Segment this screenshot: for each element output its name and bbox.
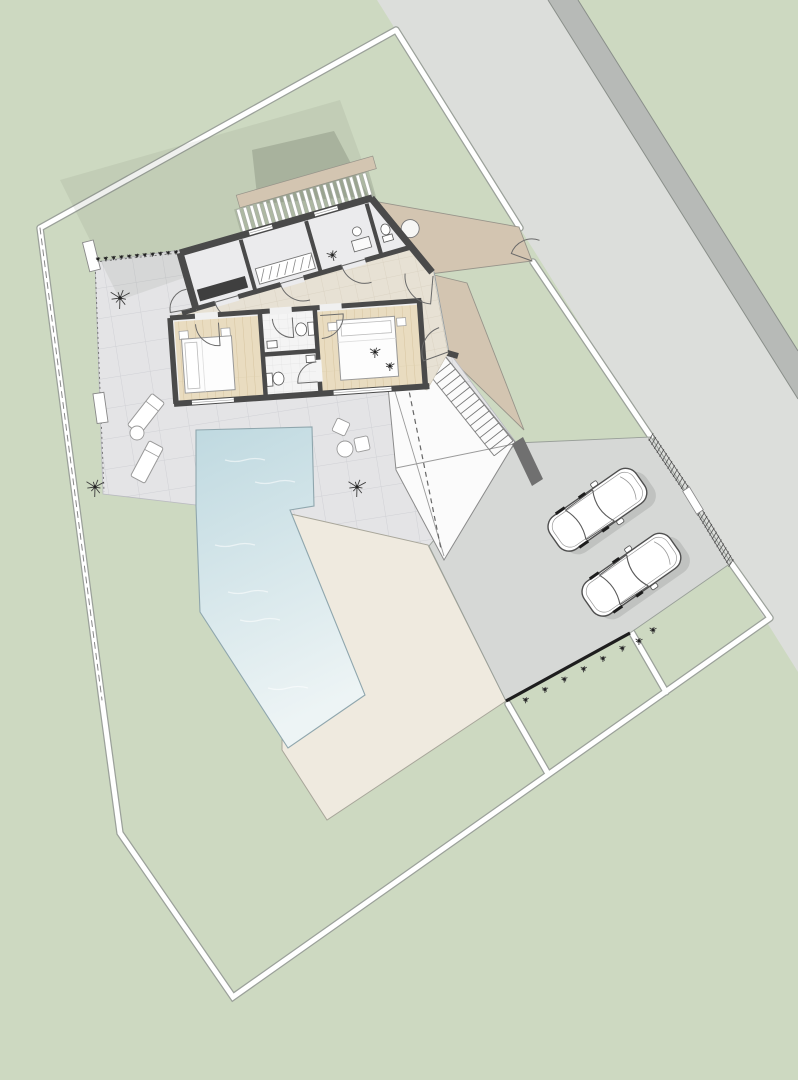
- nightstand: [397, 318, 407, 327]
- site-plan: [0, 0, 798, 1080]
- sprig-center: [93, 485, 96, 488]
- sprig-center: [128, 255, 130, 257]
- sprig-center: [97, 258, 99, 260]
- nightstand: [179, 331, 189, 340]
- sprig-center: [355, 485, 358, 488]
- sink: [267, 341, 277, 349]
- nightstand: [328, 322, 338, 331]
- sprig-center: [159, 252, 161, 254]
- sprig-center: [144, 254, 146, 256]
- sprig-center: [389, 365, 391, 367]
- sprig-center: [544, 688, 546, 690]
- sprig-center: [136, 254, 138, 256]
- sink: [306, 355, 315, 363]
- nightstand: [221, 328, 231, 337]
- sprig-center: [167, 252, 169, 254]
- sprig-center: [621, 647, 623, 649]
- sprig-center: [563, 678, 565, 680]
- sprig-center: [602, 657, 604, 659]
- sprig-center: [105, 257, 107, 259]
- site-plan-page: [0, 0, 798, 1080]
- sprig-center: [524, 699, 526, 701]
- toilet-cistern: [308, 322, 315, 335]
- sprig-center: [582, 668, 584, 670]
- sprig-center: [652, 629, 654, 631]
- house-south-wing: [168, 297, 430, 406]
- side-table: [130, 426, 144, 440]
- chair: [354, 436, 371, 453]
- sprig-center: [151, 253, 153, 255]
- sprig-center: [120, 256, 122, 258]
- sprig-center: [638, 640, 640, 642]
- side-table: [337, 441, 353, 457]
- sprig-center: [118, 296, 122, 300]
- toilet-cistern: [266, 373, 273, 386]
- sprig-center: [374, 351, 376, 353]
- sprig-center: [175, 251, 177, 253]
- sprig-center: [112, 256, 114, 258]
